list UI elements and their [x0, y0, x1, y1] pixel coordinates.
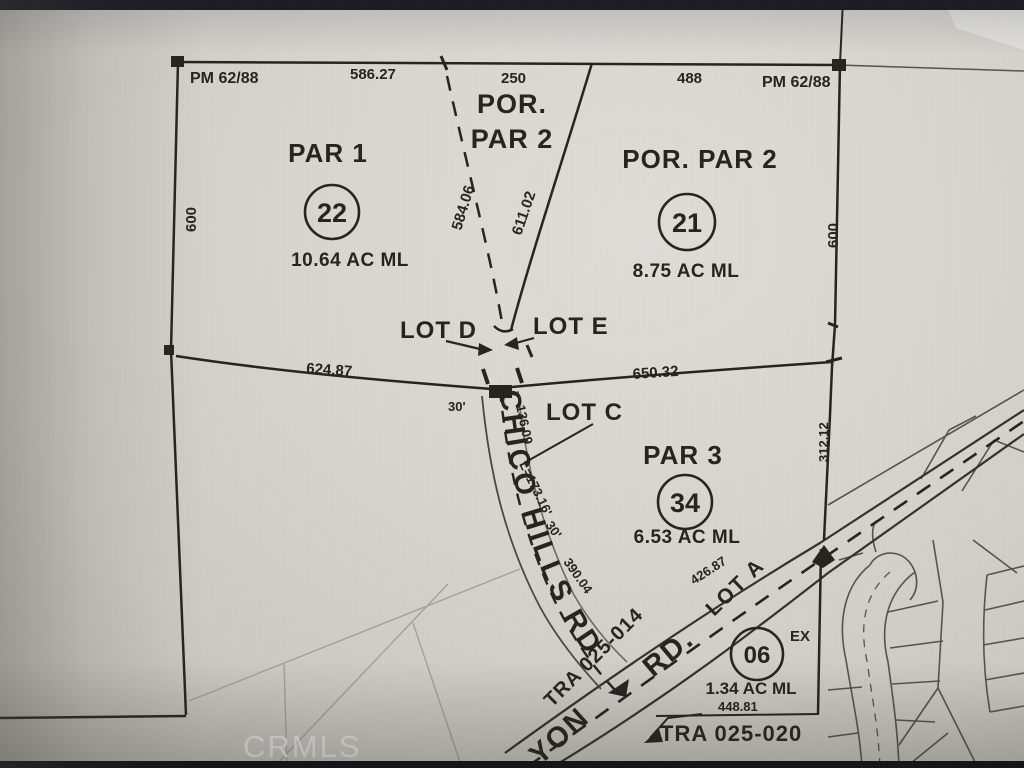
por-top-line2: PAR 2	[471, 124, 554, 154]
crmls-watermark: CRMLS	[243, 729, 362, 765]
p06-number: 06	[744, 642, 771, 669]
dim-488: 488	[677, 70, 702, 87]
dim-250: 250	[501, 70, 526, 87]
p06-ex-label: EX	[790, 628, 810, 645]
por-top-line1: POR.	[477, 89, 547, 119]
dim-650: 650.32	[632, 363, 679, 383]
canyon-rd-suffix: RD.	[637, 623, 700, 683]
par2-label: POR. PAR 2	[622, 144, 777, 174]
screen-bottom-edge	[0, 761, 1024, 768]
dim-584: 584.06	[449, 183, 479, 232]
p06-area: 1.34 AC ML	[705, 679, 796, 698]
tra-020-label: TRA 025-020	[660, 721, 802, 746]
lot-e-label: LOT E	[533, 313, 609, 340]
par1-area: 10.64 AC ML	[291, 250, 409, 271]
dim-30-corner: 30'	[448, 399, 466, 414]
dim-624: 624.87	[306, 360, 353, 380]
dim-600-right: 600	[825, 223, 842, 248]
dim-312: 312.12	[816, 422, 831, 462]
par1-label: PAR 1	[288, 138, 368, 168]
tra-014-label: TRA 025-014	[540, 604, 648, 712]
pm-ref-left: PM 62/88	[190, 70, 259, 87]
par3-area: 6.53 AC ML	[634, 527, 741, 548]
par2-number: 21	[672, 208, 702, 238]
parcel-map-drawing: CHICO HILLS RD PM 62/88 586.27 250	[0, 0, 1024, 768]
parcel-map-photo: CHICO HILLS RD PM 62/88 586.27 250	[0, 0, 1024, 768]
canyon-name-partial: YON	[523, 701, 596, 768]
road-boundary-corner-mark	[812, 545, 835, 568]
lot-d-label: LOT D	[400, 317, 477, 344]
dim-448: 448.81	[718, 699, 758, 714]
par3-number: 34	[670, 488, 700, 518]
dim-600-left: 600	[183, 207, 200, 232]
par2-area: 8.75 AC ML	[633, 261, 740, 282]
lot-c-label: LOT C	[546, 399, 623, 426]
dim-611: 611.02	[509, 189, 540, 237]
par3-label: PAR 3	[643, 440, 723, 470]
road-centerline-arrow	[608, 679, 629, 697]
pm-ref-right: PM 62/88	[762, 74, 831, 91]
dim-586: 586.27	[350, 66, 396, 83]
screen-top-edge	[0, 0, 1024, 10]
subdivision-streets	[828, 390, 1024, 768]
par1-number: 22	[317, 198, 347, 228]
